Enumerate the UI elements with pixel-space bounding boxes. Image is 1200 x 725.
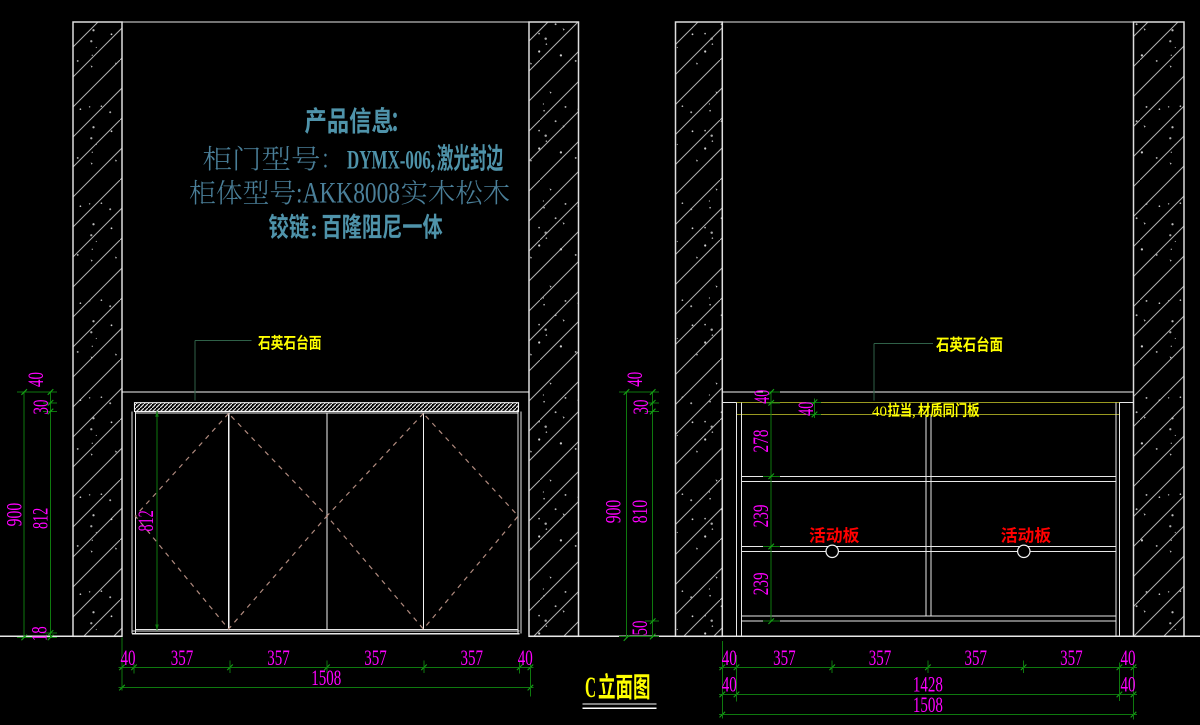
- svg-text:30: 30: [28, 400, 53, 415]
- svg-text:,: ,: [912, 404, 916, 420]
- svg-text::AKK8008: :AKK8008: [296, 177, 400, 210]
- svg-text:239: 239: [748, 572, 773, 595]
- svg-text:40: 40: [722, 672, 737, 697]
- svg-text:40: 40: [722, 645, 737, 670]
- svg-text:40: 40: [1121, 672, 1136, 697]
- svg-text:357: 357: [364, 645, 387, 670]
- svg-text:812: 812: [27, 508, 52, 529]
- svg-text:357: 357: [267, 645, 290, 670]
- svg-text:50: 50: [627, 621, 652, 636]
- svg-text:18: 18: [26, 626, 51, 641]
- svg-text:40: 40: [518, 645, 533, 670]
- svg-text:357: 357: [964, 645, 987, 670]
- svg-text::: :: [310, 217, 318, 243]
- svg-text:357: 357: [773, 645, 796, 670]
- svg-text:357: 357: [869, 645, 892, 670]
- svg-text:40: 40: [749, 390, 774, 404]
- svg-text:357: 357: [1060, 645, 1083, 670]
- svg-text:810: 810: [627, 500, 652, 524]
- svg-text:357: 357: [461, 645, 484, 670]
- svg-text:40: 40: [121, 645, 136, 670]
- svg-text:900: 900: [2, 503, 27, 527]
- svg-text:357: 357: [171, 645, 194, 670]
- svg-text:30: 30: [628, 400, 653, 415]
- svg-text:40: 40: [1121, 645, 1136, 670]
- svg-text:239: 239: [748, 504, 773, 527]
- svg-text:40: 40: [872, 404, 887, 420]
- svg-text:900: 900: [601, 500, 626, 524]
- svg-text:40: 40: [622, 372, 647, 387]
- svg-text:812: 812: [133, 510, 158, 531]
- svg-text:1508: 1508: [311, 665, 341, 690]
- svg-text:40: 40: [23, 372, 48, 387]
- svg-text:1508: 1508: [913, 692, 943, 717]
- svg-text:278: 278: [748, 430, 773, 453]
- svg-text:DYMX-006,: DYMX-006,: [347, 146, 435, 175]
- svg-text:C: C: [585, 671, 596, 704]
- svg-text:40: 40: [793, 402, 818, 416]
